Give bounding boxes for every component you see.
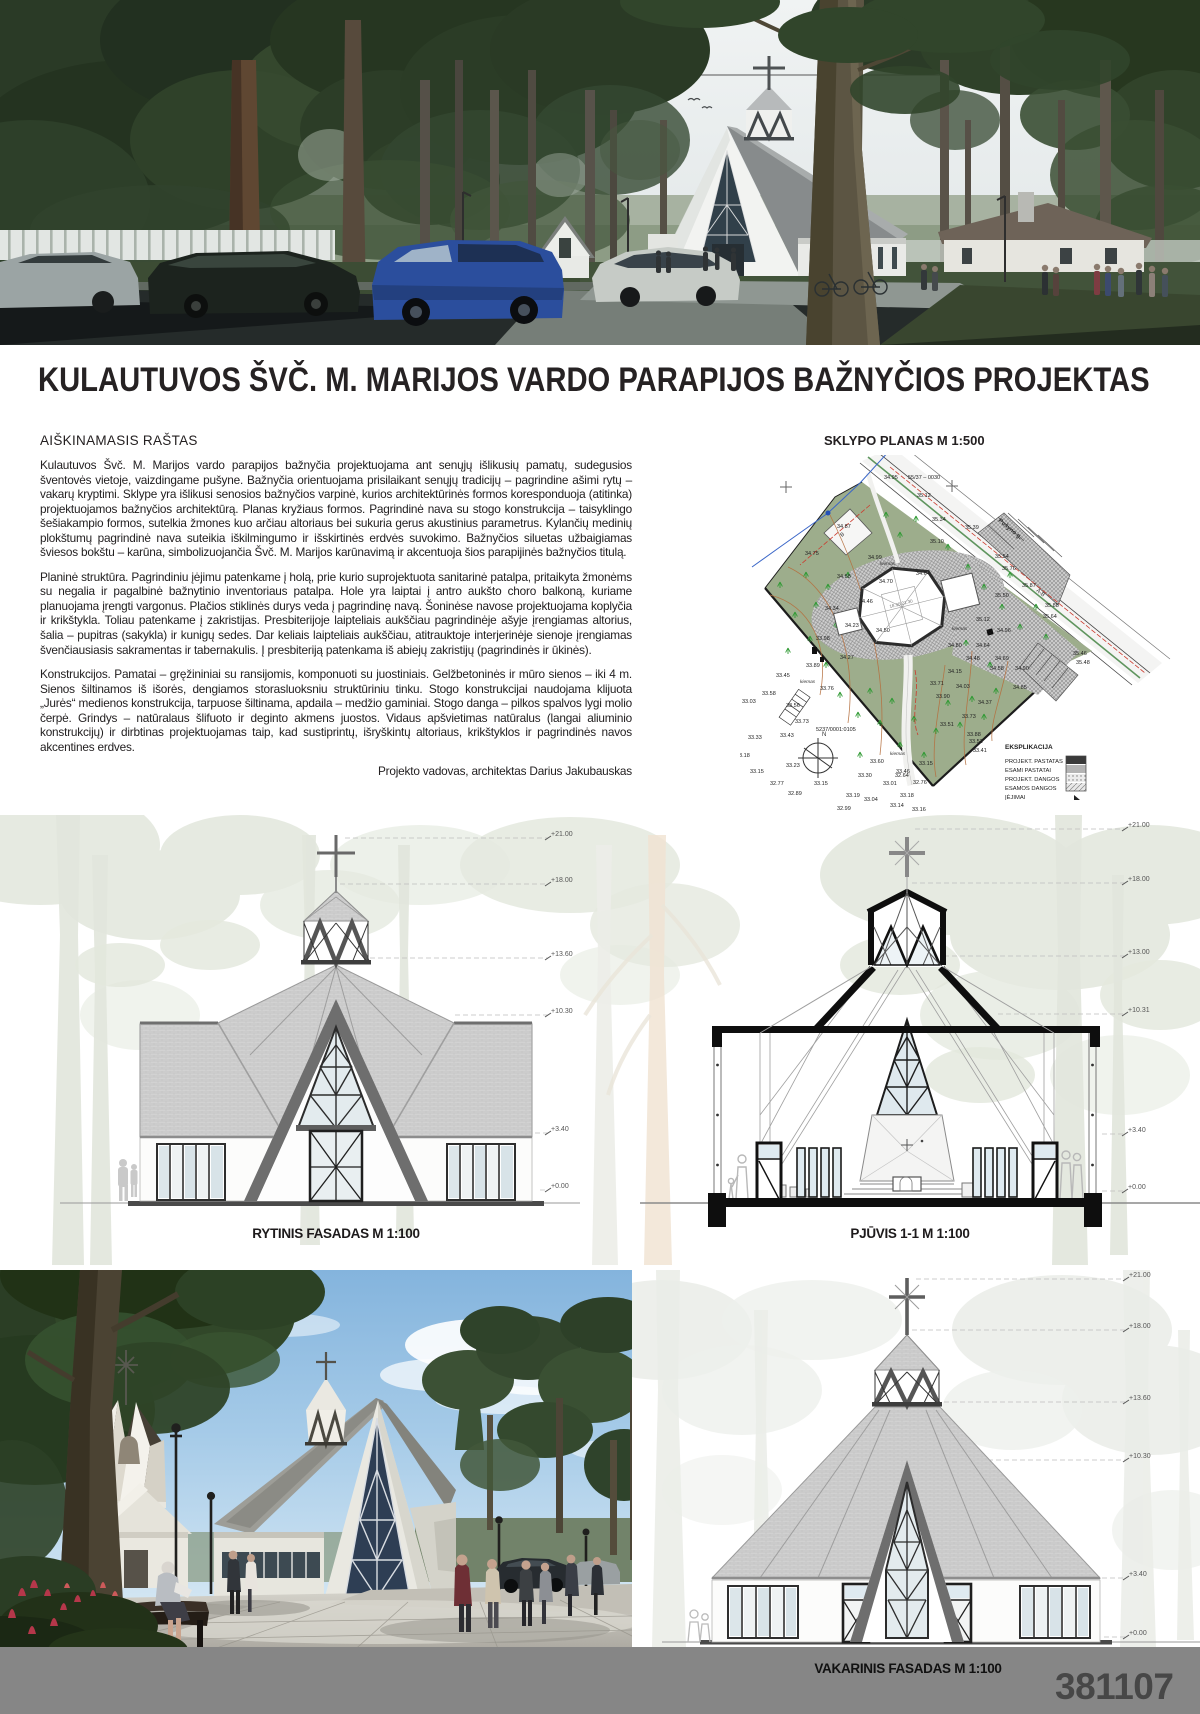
svg-text:+10.31: +10.31 <box>1128 1007 1150 1014</box>
svg-text:34.46: 34.46 <box>859 599 873 605</box>
svg-text:+18.00: +18.00 <box>1129 1323 1151 1330</box>
svg-text:35.76: 35.76 <box>1002 566 1016 572</box>
svg-text:33.41: 33.41 <box>973 748 987 754</box>
svg-text:35.12: 35.12 <box>976 617 990 623</box>
svg-text:+18.00: +18.00 <box>1128 876 1150 883</box>
svg-text:34.48: 34.48 <box>966 656 980 662</box>
svg-text:32.64: 32.64 <box>895 773 909 779</box>
svg-text:33.23: 33.23 <box>786 763 800 769</box>
svg-text:+13.60: +13.60 <box>1129 1395 1151 1402</box>
svg-text:33.73: 33.73 <box>962 714 976 720</box>
svg-text:+13.00: +13.00 <box>1128 949 1150 956</box>
svg-text:34.85: 34.85 <box>1013 685 1027 691</box>
svg-text:55/37 – 0030: 55/37 – 0030 <box>908 475 940 481</box>
svg-text:+21.00: +21.00 <box>551 831 573 838</box>
svg-text:34.58: 34.58 <box>837 574 851 580</box>
svg-text:34.64: 34.64 <box>916 571 930 577</box>
svg-text:33.16: 33.16 <box>912 807 926 813</box>
svg-text:33.18: 33.18 <box>900 793 914 799</box>
svg-text:34.95: 34.95 <box>884 475 898 481</box>
svg-text:35.54: 35.54 <box>995 554 1009 560</box>
svg-text:33.90: 33.90 <box>936 694 950 700</box>
svg-text:34.64: 34.64 <box>976 643 990 649</box>
svg-text:32.76: 32.76 <box>913 780 927 786</box>
svg-text:34.15: 34.15 <box>948 669 962 675</box>
svg-text:+0.00: +0.00 <box>1129 1630 1147 1637</box>
svg-text:33.15: 33.15 <box>750 769 764 775</box>
svg-text:35.46: 35.46 <box>1073 651 1087 657</box>
svg-text:34.96: 34.96 <box>997 628 1011 634</box>
svg-text:34.69: 34.69 <box>995 656 1009 662</box>
svg-text:33.19: 33.19 <box>846 793 860 799</box>
svg-text:+0.00: +0.00 <box>551 1183 569 1190</box>
svg-text:34.87: 34.87 <box>837 524 851 530</box>
svg-text:34.50: 34.50 <box>876 628 890 634</box>
svg-text:33.14: 33.14 <box>890 803 904 809</box>
svg-text:33.76: 33.76 <box>820 686 834 692</box>
svg-text:34.90: 34.90 <box>1015 666 1029 672</box>
svg-text:34.75: 34.75 <box>805 551 819 557</box>
svg-text:EKSPLIKACIJA: EKSPLIKACIJA <box>1005 744 1053 751</box>
svg-text:34.70: 34.70 <box>879 579 893 585</box>
svg-text:33.56: 33.56 <box>786 703 800 709</box>
svg-text:kiemas: kiemas <box>880 561 896 567</box>
svg-text:+3.40: +3.40 <box>551 1126 569 1133</box>
svg-text:+3.40: +3.40 <box>1128 1127 1146 1134</box>
svg-text:35.50: 35.50 <box>995 593 1009 599</box>
svg-text:34.80: 34.80 <box>948 643 962 649</box>
svg-text:33.98: 33.98 <box>816 636 830 642</box>
svg-text:+13.60: +13.60 <box>551 951 573 958</box>
svg-text:33.60: 33.60 <box>870 759 884 765</box>
svg-text:PROJEKT. DANGOS: PROJEKT. DANGOS <box>1005 777 1060 783</box>
svg-text:33.51: 33.51 <box>940 722 954 728</box>
svg-text:kiemas: kiemas <box>890 751 906 757</box>
svg-text:34.37: 34.37 <box>978 700 992 706</box>
svg-text:+3.40: +3.40 <box>1129 1571 1147 1578</box>
svg-text:+10.30: +10.30 <box>1129 1453 1151 1460</box>
svg-text:33.18: 33.18 <box>740 753 750 759</box>
svg-text:33.30: 33.30 <box>858 773 872 779</box>
svg-text:33.71: 33.71 <box>930 681 944 687</box>
svg-text:33.73: 33.73 <box>795 719 809 725</box>
svg-text:33.45: 33.45 <box>776 673 790 679</box>
svg-text:34.58: 34.58 <box>990 666 1004 672</box>
svg-text:32.77: 32.77 <box>770 781 784 787</box>
svg-text:35.64: 35.64 <box>1043 614 1057 620</box>
svg-text:34.34: 34.34 <box>825 606 839 612</box>
svg-text:33.53: 33.53 <box>969 739 983 745</box>
svg-text:kiemas: kiemas <box>952 626 968 632</box>
svg-text:+18.00: +18.00 <box>551 877 573 884</box>
svg-text:35.10: 35.10 <box>930 539 944 545</box>
svg-text:32.89: 32.89 <box>788 791 802 797</box>
svg-text:33.03: 33.03 <box>742 699 756 705</box>
svg-text:34.27: 34.27 <box>840 655 854 661</box>
svg-text:35.39: 35.39 <box>965 525 979 531</box>
svg-text:+0.00: +0.00 <box>1128 1184 1146 1191</box>
svg-text:33.88: 33.88 <box>967 732 981 738</box>
svg-text:ESAMOS DANGOS: ESAMOS DANGOS <box>1005 786 1057 792</box>
svg-text:5237/0001:0105: 5237/0001:0105 <box>816 727 856 733</box>
svg-text:35.87: 35.87 <box>1022 583 1036 589</box>
svg-text:ESAMI PASTATAI: ESAMI PASTATAI <box>1005 768 1051 774</box>
svg-text:35.12: 35.12 <box>917 493 931 499</box>
svg-text:+10.30: +10.30 <box>551 1008 573 1015</box>
svg-text:+21.00: +21.00 <box>1128 822 1150 829</box>
svg-text:kiemas: kiemas <box>800 679 816 685</box>
svg-text:33.15: 33.15 <box>919 761 933 767</box>
svg-text:33.04: 33.04 <box>864 797 878 803</box>
svg-text:32.99: 32.99 <box>837 806 851 812</box>
svg-text:+21.00: +21.00 <box>1129 1272 1151 1279</box>
svg-text:33.33: 33.33 <box>748 735 762 741</box>
svg-text:PROJEKT. PASTATAS: PROJEKT. PASTATAS <box>1005 759 1063 765</box>
svg-text:35.88: 35.88 <box>1045 603 1059 609</box>
svg-text:33.15: 33.15 <box>814 781 828 787</box>
svg-text:33.43: 33.43 <box>780 733 794 739</box>
svg-text:33.01: 33.01 <box>883 781 897 787</box>
svg-text:33.58: 33.58 <box>762 691 776 697</box>
svg-text:ĮĖJIMAI: ĮĖJIMAI <box>1005 794 1026 801</box>
svg-text:35.48: 35.48 <box>1076 660 1090 666</box>
svg-text:35.34: 35.34 <box>932 517 946 523</box>
svg-text:34.03: 34.03 <box>956 684 970 690</box>
svg-text:34.99: 34.99 <box>868 555 882 561</box>
svg-text:34.23: 34.23 <box>845 623 859 629</box>
svg-text:33.89: 33.89 <box>806 663 820 669</box>
